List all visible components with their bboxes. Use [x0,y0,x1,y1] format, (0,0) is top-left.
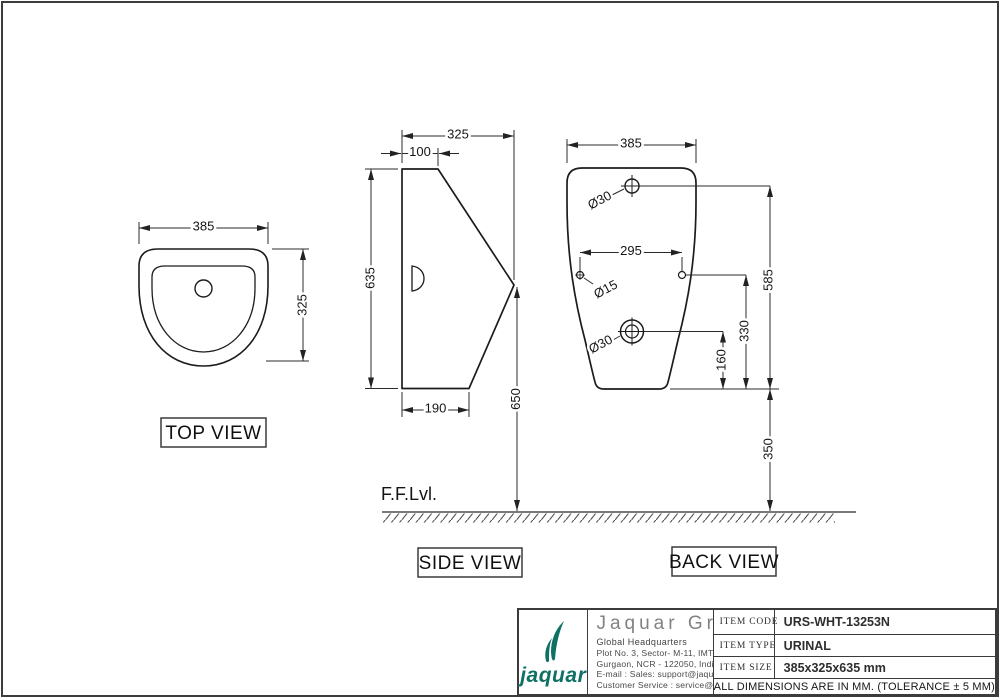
title-block: jaquar Jaquar Group Global Headquarters … [517,608,997,696]
floor-hatching [383,514,835,523]
side-view-spreader-detail [412,266,424,291]
company-headquarters: Global Headquarters [596,637,706,648]
back-view-outlet-dia: Ø30 [586,332,615,357]
side-view-dimensions [365,130,517,511]
floor-line: F.F.Lvl. [381,484,856,523]
top-view-drain-hole [195,280,212,297]
back-view-label: BACK VIEW [669,552,779,573]
item-size-value: 385x325x635 mm [775,661,995,675]
dimensions-note: ALL DIMENSIONS ARE IN MM. (TOLERANCE ± 5… [714,679,995,694]
item-type-value: URINAL [775,639,995,653]
top-view-depth-dim: 325 [294,294,309,316]
company-address-line2: Gurgaon, NCR - 122050, India [596,659,706,670]
back-view-holes-spacing-dim: 295 [620,243,642,258]
side-view-height-dim: 635 [362,267,377,289]
back-view-outlet-height-dim: 160 [713,349,728,371]
side-view-label: SIDE VIEW [419,553,522,574]
company-address-line1: Plot No. 3, Sector- M-11, IMT Manesar [596,648,706,659]
side-view-outline [402,169,514,389]
back-view-small-hole-height-dim: 330 [736,320,751,342]
side-view-rim-height-dim: 650 [508,388,523,410]
top-view-dimensions [139,222,309,361]
back-view-top-hole-height-dim: 585 [760,269,775,291]
company-email-line: E-mail : Sales: support@jaquar.com [596,669,706,680]
back-view-top-hole [621,175,643,197]
technical-drawing: 385 325 TOP VIEW [0,0,1000,698]
item-info-table: ITEM CODE URS-WHT-13253N ITEM TYPE URINA… [714,610,995,694]
back-view-width-dim: 385 [620,135,642,150]
top-view-width-dim: 385 [193,218,215,233]
item-code-value: URS-WHT-13253N [775,615,995,629]
item-type-row: ITEM TYPE URINAL [714,635,995,657]
side-view: 325 100 635 190 650 SIDE VIEW [362,126,523,577]
top-view-label: TOP VIEW [165,423,261,444]
back-view-outlet-hole [618,318,646,346]
brand-wordmark: jaquar [520,664,586,688]
floor-level-label: F.F.Lvl. [381,484,437,504]
top-view: 385 325 TOP VIEW [139,218,309,447]
back-view-top-hole-dia: Ø30 [585,188,614,213]
back-view-small-hole-dia: Ø15 [591,277,620,302]
jaquar-swoosh-icon [536,619,570,663]
company-service-line: Customer Service : service@jaquar.com [596,680,706,691]
item-size-row: ITEM SIZE 385x325x635 mm [714,657,995,679]
item-size-label: ITEM SIZE [714,657,775,678]
company-name: Jaquar Group [596,613,706,635]
item-type-label: ITEM TYPE [714,635,775,656]
item-code-row: ITEM CODE URS-WHT-13253N [714,610,995,635]
back-view-mount-height-dim: 350 [760,438,775,460]
back-view-small-holes [575,270,686,280]
side-view-base-depth-dim: 190 [425,400,447,415]
back-view: 385 Ø30 295 Ø15 Ø30 585 330 160 350 BACK… [567,135,779,576]
company-info: Jaquar Group Global Headquarters Plot No… [588,610,713,694]
item-code-label: ITEM CODE [714,610,775,634]
drawing-sheet: 385 325 TOP VIEW [0,0,1000,698]
side-view-depth-dim: 325 [447,126,469,141]
brand-logo: jaquar [519,610,588,694]
top-view-inner-bowl [152,266,255,352]
side-view-top-flat-dim: 100 [409,144,431,159]
